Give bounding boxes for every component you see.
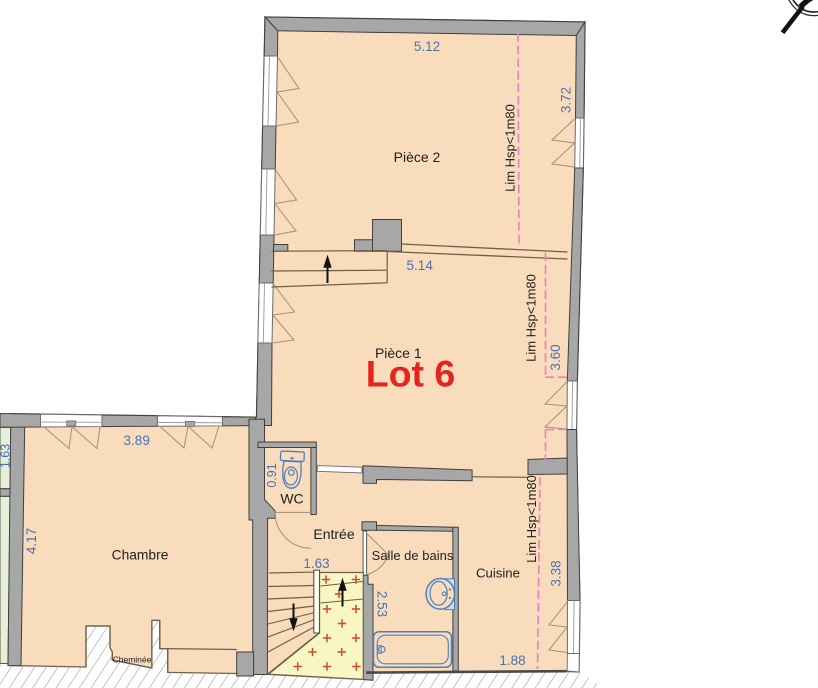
svg-text:Lim Hsp<1m80: Lim Hsp<1m80 — [524, 475, 539, 563]
svg-text:0.91: 0.91 — [265, 463, 279, 487]
svg-text:Chambre: Chambre — [112, 548, 169, 563]
svg-text:Salle de bains: Salle de bains — [372, 548, 454, 563]
svg-text:Pièce 2: Pièce 2 — [394, 149, 441, 165]
svg-text:1.88: 1.88 — [499, 653, 525, 668]
svg-text:3.72: 3.72 — [559, 87, 574, 113]
svg-text:2.53: 2.53 — [374, 591, 389, 617]
svg-text:3.60: 3.60 — [548, 344, 563, 370]
svg-text:3.38: 3.38 — [549, 560, 564, 586]
svg-text:Cuisine: Cuisine — [476, 566, 520, 581]
svg-text:Lim Hsp<1m80: Lim Hsp<1m80 — [503, 104, 518, 192]
svg-text:Lot 6: Lot 6 — [366, 353, 456, 395]
svg-text:5.12: 5.12 — [414, 39, 440, 54]
svg-text:3.89: 3.89 — [124, 433, 150, 448]
svg-text:Entrée: Entrée — [313, 526, 354, 542]
svg-text:5.14: 5.14 — [407, 258, 434, 273]
svg-text:1.63: 1.63 — [303, 556, 329, 571]
svg-text:WC: WC — [280, 491, 303, 507]
svg-text:Lim Hsp<1m80: Lim Hsp<1m80 — [524, 274, 539, 362]
svg-text:4.17: 4.17 — [24, 528, 39, 554]
svg-text:Cheminée: Cheminée — [113, 655, 152, 665]
